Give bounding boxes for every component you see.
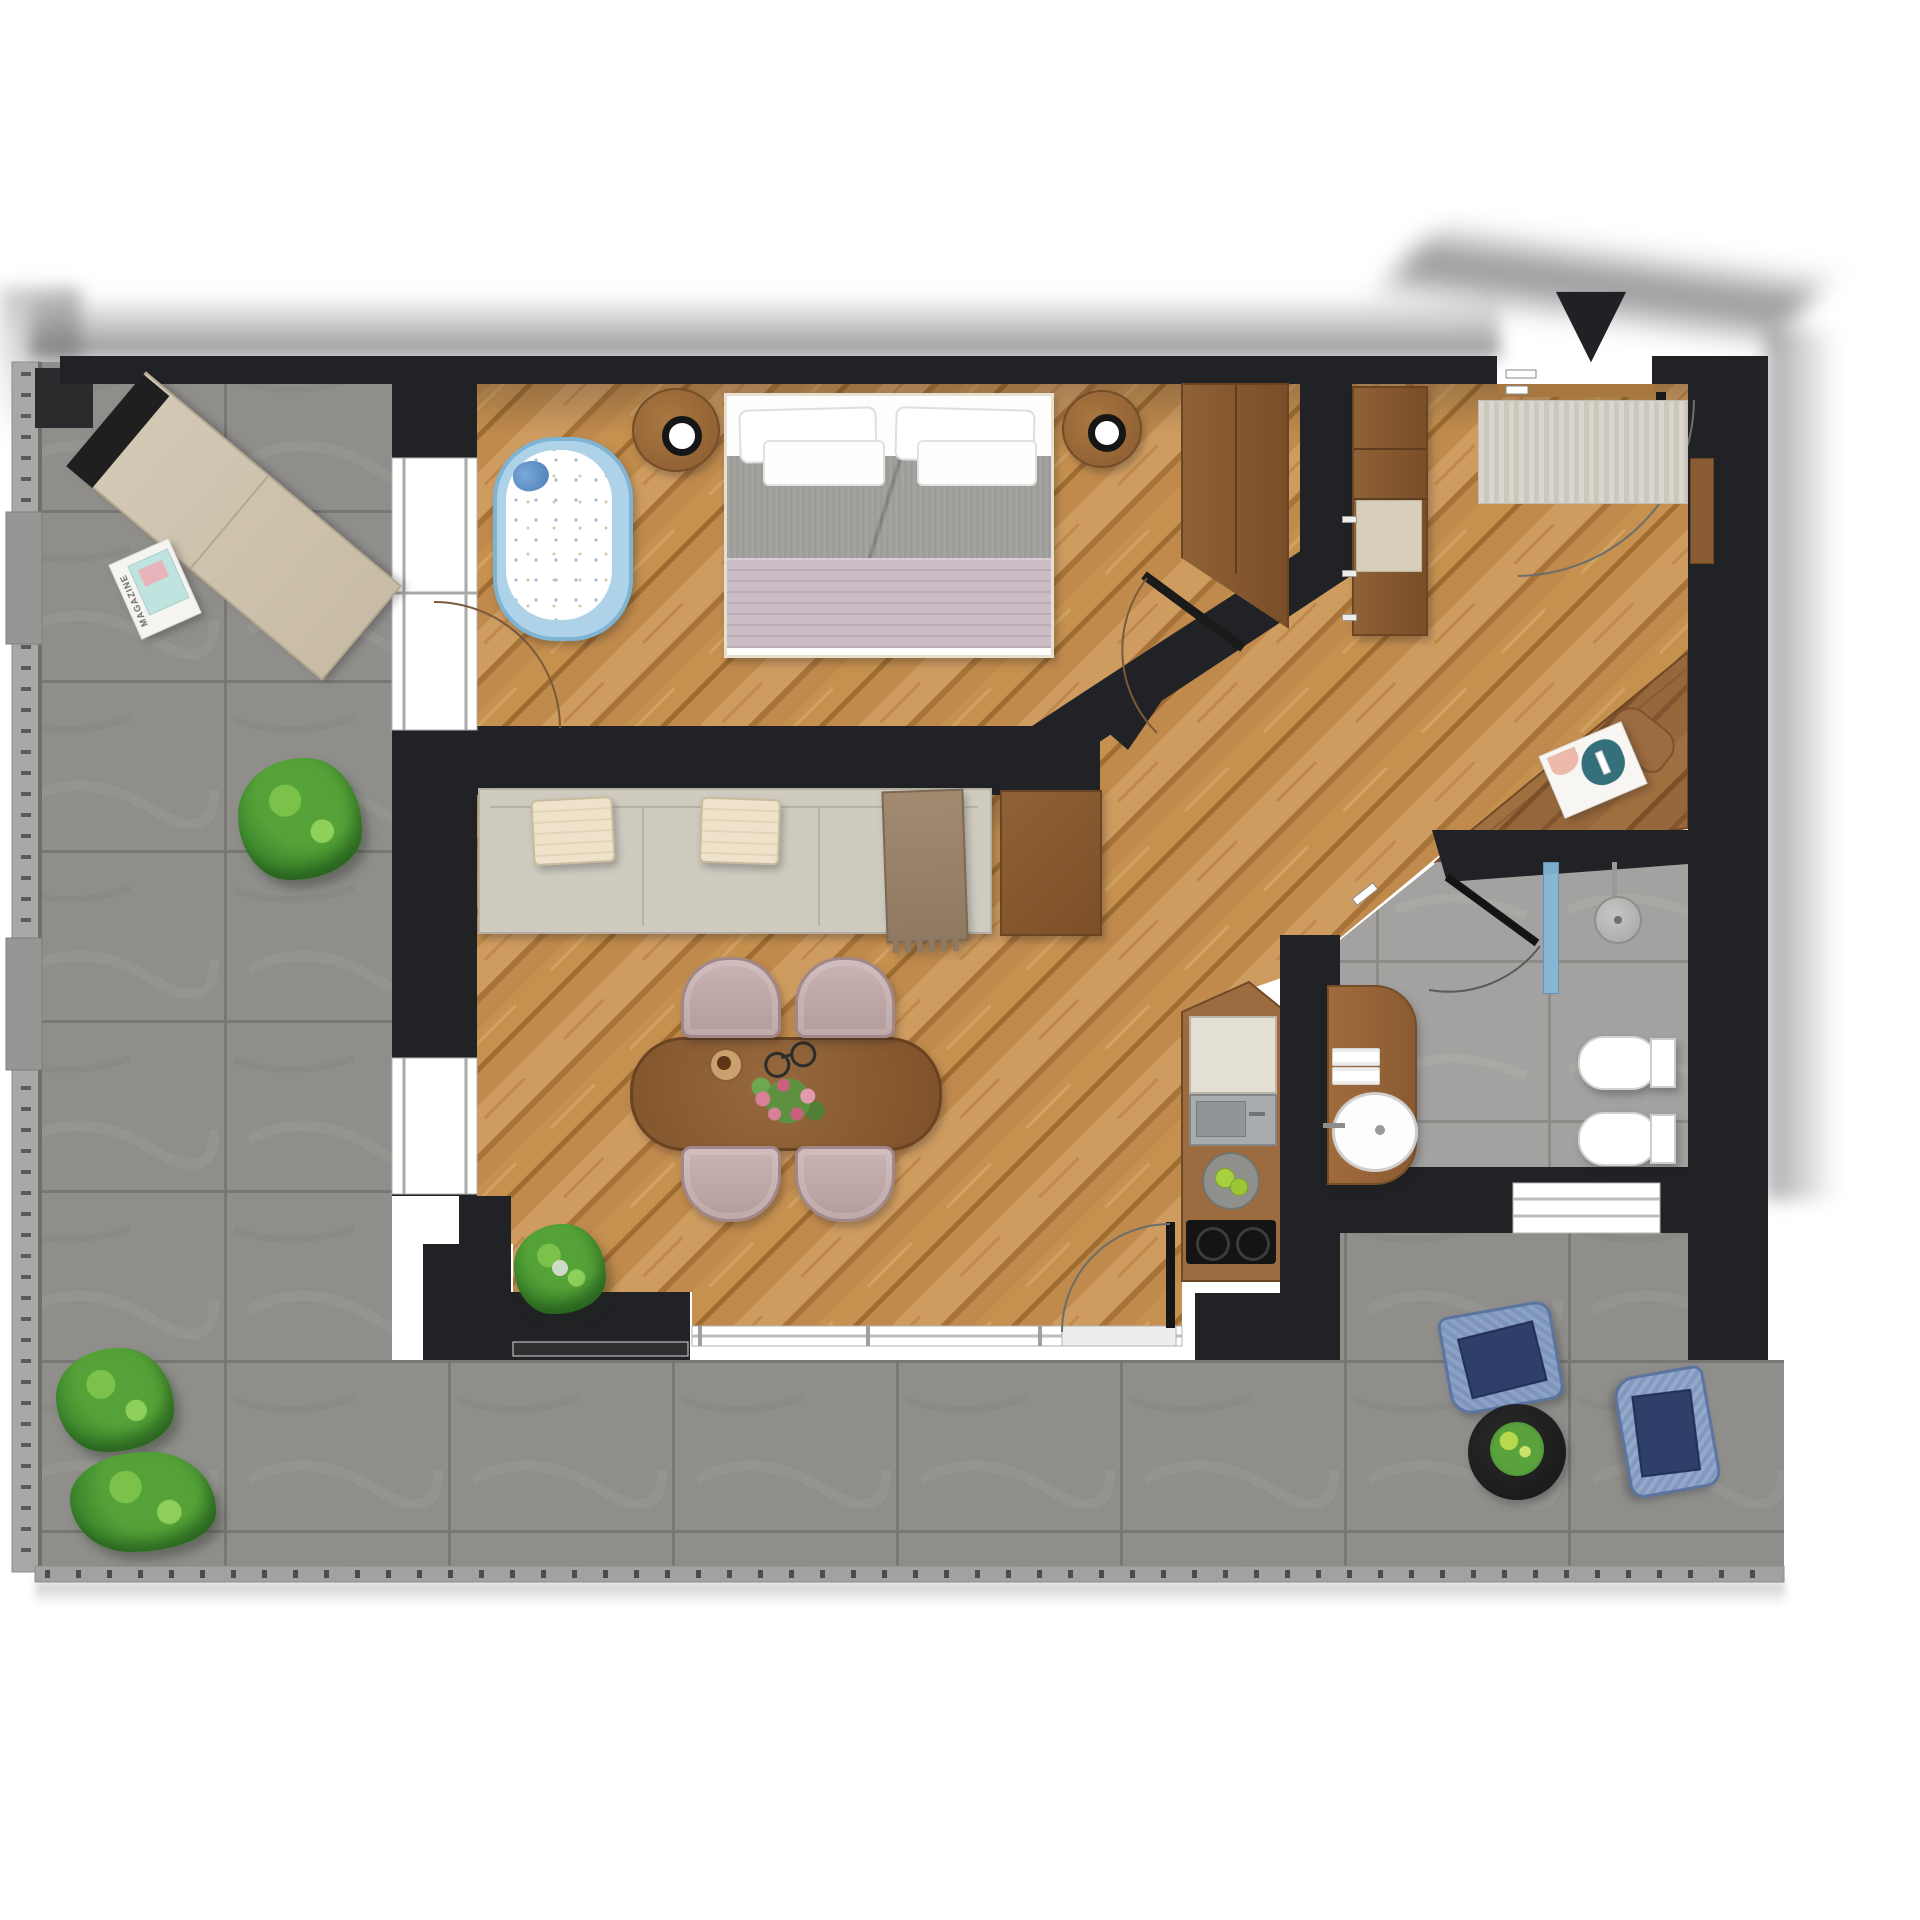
- wardrobe-divider: [1235, 385, 1237, 574]
- lounger-fold-line: [190, 476, 269, 569]
- baby-crib: [493, 437, 633, 641]
- wall-north: [60, 356, 1497, 384]
- wall-bedroom-east: [1300, 384, 1352, 552]
- cabinet-mat: [1356, 500, 1422, 572]
- toilet: [1578, 1036, 1674, 1086]
- railing-post-2: [6, 938, 42, 1070]
- bidet: [1578, 1112, 1674, 1162]
- fridge-unit: [1189, 1016, 1277, 1094]
- towel-2: [1332, 1067, 1380, 1085]
- flower-centerpiece: [743, 1072, 833, 1132]
- round-washbasin: [1332, 1092, 1418, 1172]
- sofa-seam-2: [818, 806, 820, 926]
- basin-drain: [1375, 1125, 1385, 1135]
- terrace-door-leaf: [1166, 1222, 1175, 1328]
- bed-pillow-small-right: [917, 440, 1037, 486]
- sofa-throw-blanket: [881, 789, 968, 944]
- window-bathroom: [1513, 1183, 1660, 1233]
- wall-step-1: [459, 1196, 511, 1244]
- burner-1: [1196, 1227, 1230, 1261]
- chair-2-cushion: [1631, 1389, 1701, 1478]
- apple-2: [1230, 1178, 1248, 1196]
- entry-hinge-mark-2: [1506, 386, 1528, 394]
- fruit-plate: [1202, 1152, 1260, 1210]
- wall-planter-strip: [513, 1342, 688, 1356]
- burner-2: [1236, 1227, 1270, 1261]
- terrace-bush-lower-2: [70, 1452, 216, 1552]
- sofa-seam-1: [642, 806, 644, 926]
- dining-chair-2: [795, 957, 895, 1038]
- double-bed: [724, 393, 1054, 658]
- cup-handle: [703, 1061, 711, 1065]
- sink-faucet: [1249, 1112, 1265, 1116]
- kitchen-sink: [1189, 1094, 1277, 1146]
- sofa-cushion-1: [530, 796, 615, 866]
- recessed-cabinet: [1690, 458, 1714, 564]
- wall-bath-south-left: [1340, 1183, 1513, 1233]
- nightstand-left-lamp: [662, 416, 702, 456]
- wall-north-jamb: [1652, 356, 1688, 384]
- bed-striped-blanket: [727, 558, 1051, 648]
- wall-bath-south-right: [1660, 1183, 1688, 1233]
- entry-hinge-mark-1: [1506, 370, 1536, 378]
- railing-post-1: [6, 512, 42, 644]
- houseplant-pot: [552, 1260, 568, 1276]
- cabinet-handle-1: [1342, 516, 1357, 523]
- bed-pillow-small-left: [763, 440, 885, 486]
- entry-doormat: [1478, 400, 1688, 504]
- side-cabinet: [1000, 790, 1102, 936]
- basin-faucet: [1323, 1123, 1345, 1128]
- blanket-fringe: [893, 939, 959, 953]
- coffee: [717, 1056, 731, 1070]
- terrace-coffee-table: [1468, 1404, 1566, 1500]
- shower-glass-panel: [1543, 862, 1559, 994]
- terrace-door-threshold: [1062, 1326, 1176, 1346]
- wall-bedroom-south: [477, 726, 1100, 795]
- shower-head: [1594, 896, 1642, 944]
- sink-basin: [1196, 1101, 1246, 1137]
- chair-1-cushion: [1457, 1320, 1548, 1399]
- nightstand-left: [632, 388, 720, 472]
- terrace-bush-upper: [238, 758, 362, 880]
- cabinet-handle-3: [1342, 614, 1357, 621]
- woven-chair-1: [1436, 1299, 1566, 1417]
- cooktop: [1186, 1220, 1276, 1264]
- terrace-bush-lower-1: [56, 1348, 174, 1452]
- cabinet-handle-2: [1342, 570, 1357, 577]
- wall-step-2: [423, 1244, 511, 1292]
- floor-plan-canvas: ▼: [0, 0, 1920, 1920]
- nightstand-right: [1062, 390, 1142, 468]
- terrace-table-plant: [1490, 1422, 1544, 1476]
- north-arrow-icon: ▼: [1543, 288, 1639, 352]
- nightstand-right-lamp: [1088, 414, 1126, 452]
- coffee-cup: [709, 1048, 743, 1082]
- houseplant: [514, 1224, 606, 1314]
- dining-table: [630, 1037, 942, 1151]
- wall-kitchen-chunk: [1195, 1293, 1340, 1360]
- towel-1: [1332, 1048, 1380, 1066]
- sofa-cushion-2: [699, 797, 781, 866]
- dining-chair-1: [681, 957, 781, 1038]
- hall-cabinet-column: [1352, 386, 1428, 636]
